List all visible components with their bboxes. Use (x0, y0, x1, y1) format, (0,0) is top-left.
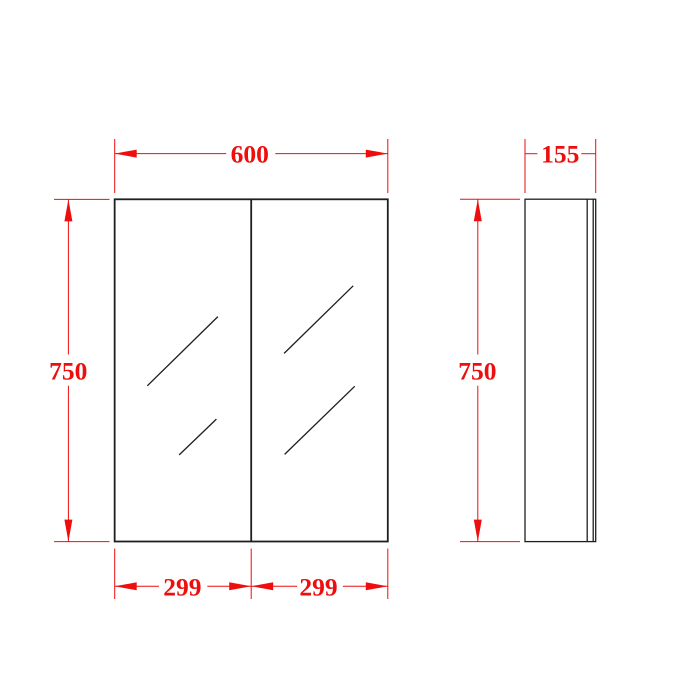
svg-text:750: 750 (49, 357, 87, 386)
svg-text:299: 299 (299, 573, 337, 602)
svg-text:600: 600 (231, 140, 269, 169)
svg-text:155: 155 (541, 140, 579, 169)
svg-text:299: 299 (163, 573, 201, 602)
svg-text:750: 750 (458, 357, 496, 386)
